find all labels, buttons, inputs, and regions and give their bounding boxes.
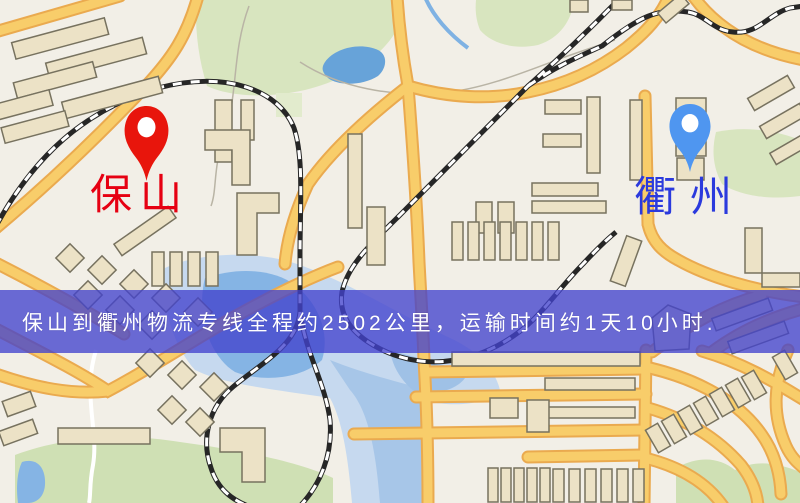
route-info-text: 保山到衢州物流专线全程约2502公里，运输时间约1天10小时. <box>0 307 717 337</box>
destination-city-label: 衢州 <box>634 176 746 218</box>
pin-hole <box>137 117 155 137</box>
pond <box>17 461 45 503</box>
map-screenshot: 保山 衢州 保山到衢州物流专线全程约2502公里，运输时间约1天10小时. <box>0 0 800 503</box>
map-canvas <box>0 0 800 503</box>
destination-pin-icon <box>668 104 712 172</box>
route-info-banner: 保山到衢州物流专线全程约2502公里，运输时间约1天10小时. <box>0 290 800 353</box>
pin-hole <box>682 114 699 132</box>
destination-pin[interactable] <box>668 104 712 172</box>
origin-city-label: 保山 <box>90 174 190 216</box>
